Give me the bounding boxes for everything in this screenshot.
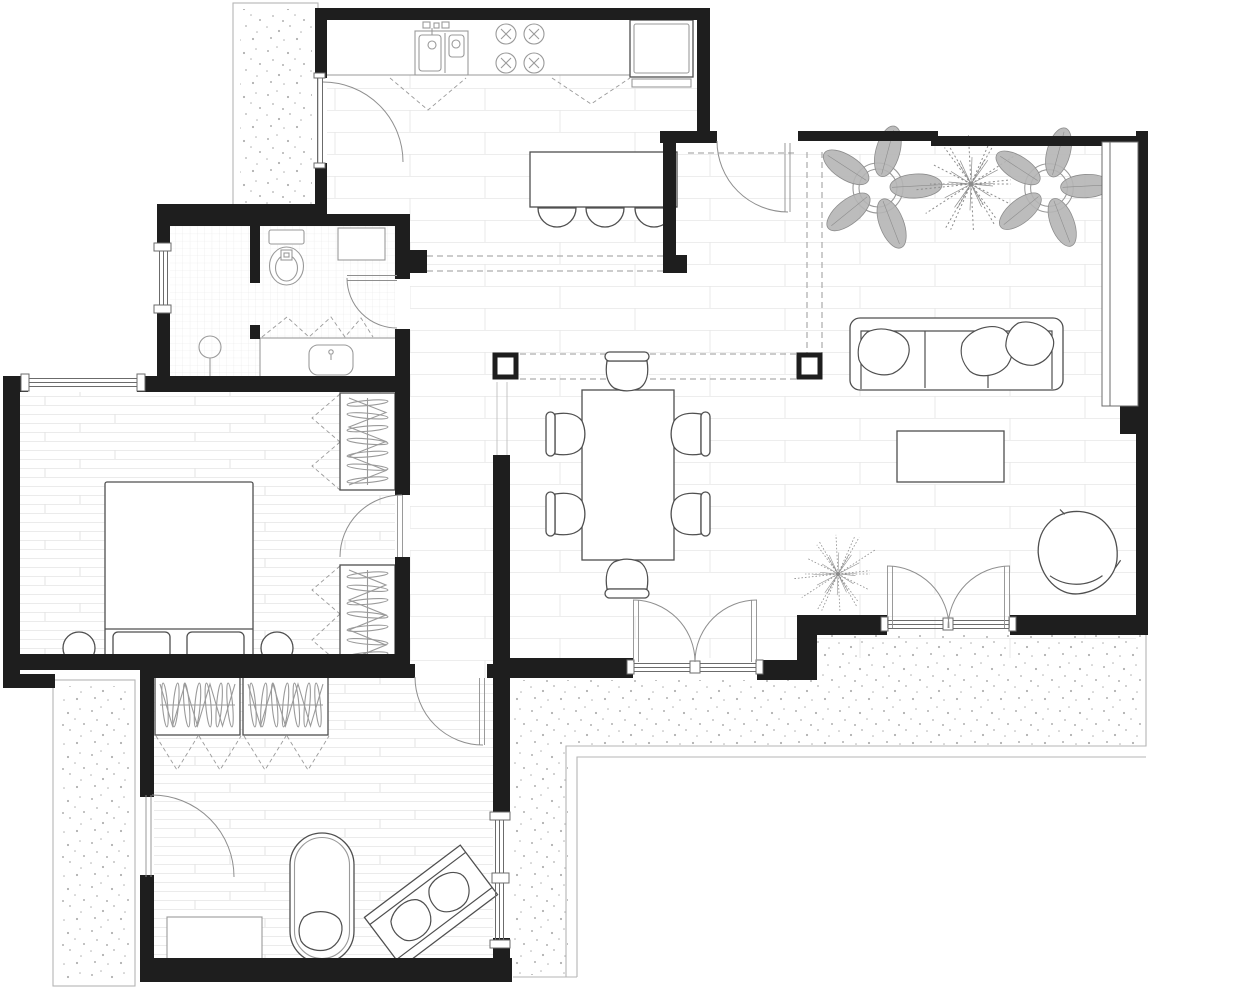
living-south-wall-right2 (1010, 615, 1147, 635)
terrace-stub-wall (3, 674, 55, 688)
hall-nib-wall (410, 250, 427, 273)
room2-wardrobe-right (243, 675, 328, 735)
dining-chair (671, 412, 710, 456)
desk (167, 917, 262, 961)
room2-west-wall-upper (140, 664, 154, 797)
bath-cabinet (338, 228, 385, 260)
bedroom-wardrobe-north (340, 393, 395, 490)
bathroom-west-wall-lower (157, 305, 170, 378)
bedroom-wardrobe-south (340, 565, 395, 665)
kitchen-east-wall-upper (697, 8, 710, 133)
bedroom-east-wall-upper (395, 392, 410, 495)
dining-chair (546, 412, 585, 456)
coffee-table (897, 431, 1004, 482)
toilet (269, 230, 304, 285)
dining-table (582, 390, 674, 560)
bedroom-west-wall (3, 376, 20, 688)
terrace-stipple (61, 686, 130, 979)
room2-north-wall-left (140, 664, 415, 678)
bedroom-north-wall-right (137, 376, 410, 392)
floor-plan-page (0, 0, 1240, 989)
living-south-wall-jog (797, 635, 817, 680)
bedroom-east-wall-lower (395, 557, 410, 654)
living-south-wall-left (510, 658, 633, 678)
bathroom-north-wall (157, 214, 410, 226)
floor-tile (410, 214, 1136, 658)
kitchen-east-wall-inner (663, 143, 676, 255)
living-south-wall-right1 (797, 615, 887, 635)
dining-chair (605, 559, 649, 598)
terrace-stipple (240, 9, 312, 205)
dining-chair (605, 352, 649, 391)
bathroom-east-wall-upper (395, 226, 410, 279)
room2-wardrobe-left (155, 675, 240, 735)
structural-column (495, 355, 516, 377)
living-east-window (1102, 142, 1138, 406)
dining-chair (546, 492, 585, 536)
kitchen-west-wall-upper (315, 8, 327, 78)
dining-chair (671, 492, 710, 536)
kitchen-counter (327, 20, 630, 75)
bathroom-east-wall-lower (395, 329, 410, 376)
kitchen-wall-foot (663, 255, 687, 273)
east-partition-wall (493, 455, 510, 820)
counter-surface (327, 20, 630, 75)
bath-partition-upper (250, 226, 260, 283)
east-wall-notch (1120, 406, 1136, 434)
structural-column (799, 355, 820, 377)
floor-plan (0, 0, 1240, 989)
room2-south-wall (140, 958, 512, 982)
kitchen-north-wall (315, 8, 710, 20)
fridge (630, 20, 693, 87)
bath-partition-lower (250, 325, 260, 339)
bar-stools (538, 208, 673, 227)
top-wall-left (798, 131, 938, 141)
kitchen-island (530, 152, 677, 207)
